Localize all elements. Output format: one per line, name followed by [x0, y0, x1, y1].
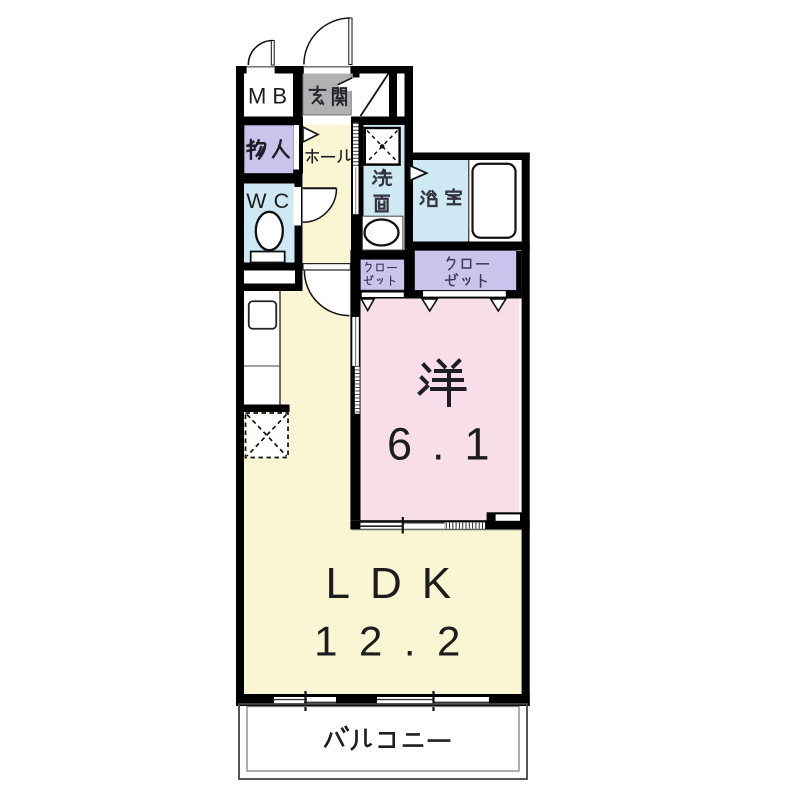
svg-text:6.1: 6.1: [387, 419, 510, 470]
svg-text:MB: MB: [248, 83, 293, 108]
svg-text:12.2: 12.2: [314, 618, 482, 665]
svg-text:WC: WC: [246, 189, 296, 213]
svg-text:LDK: LDK: [326, 559, 472, 608]
